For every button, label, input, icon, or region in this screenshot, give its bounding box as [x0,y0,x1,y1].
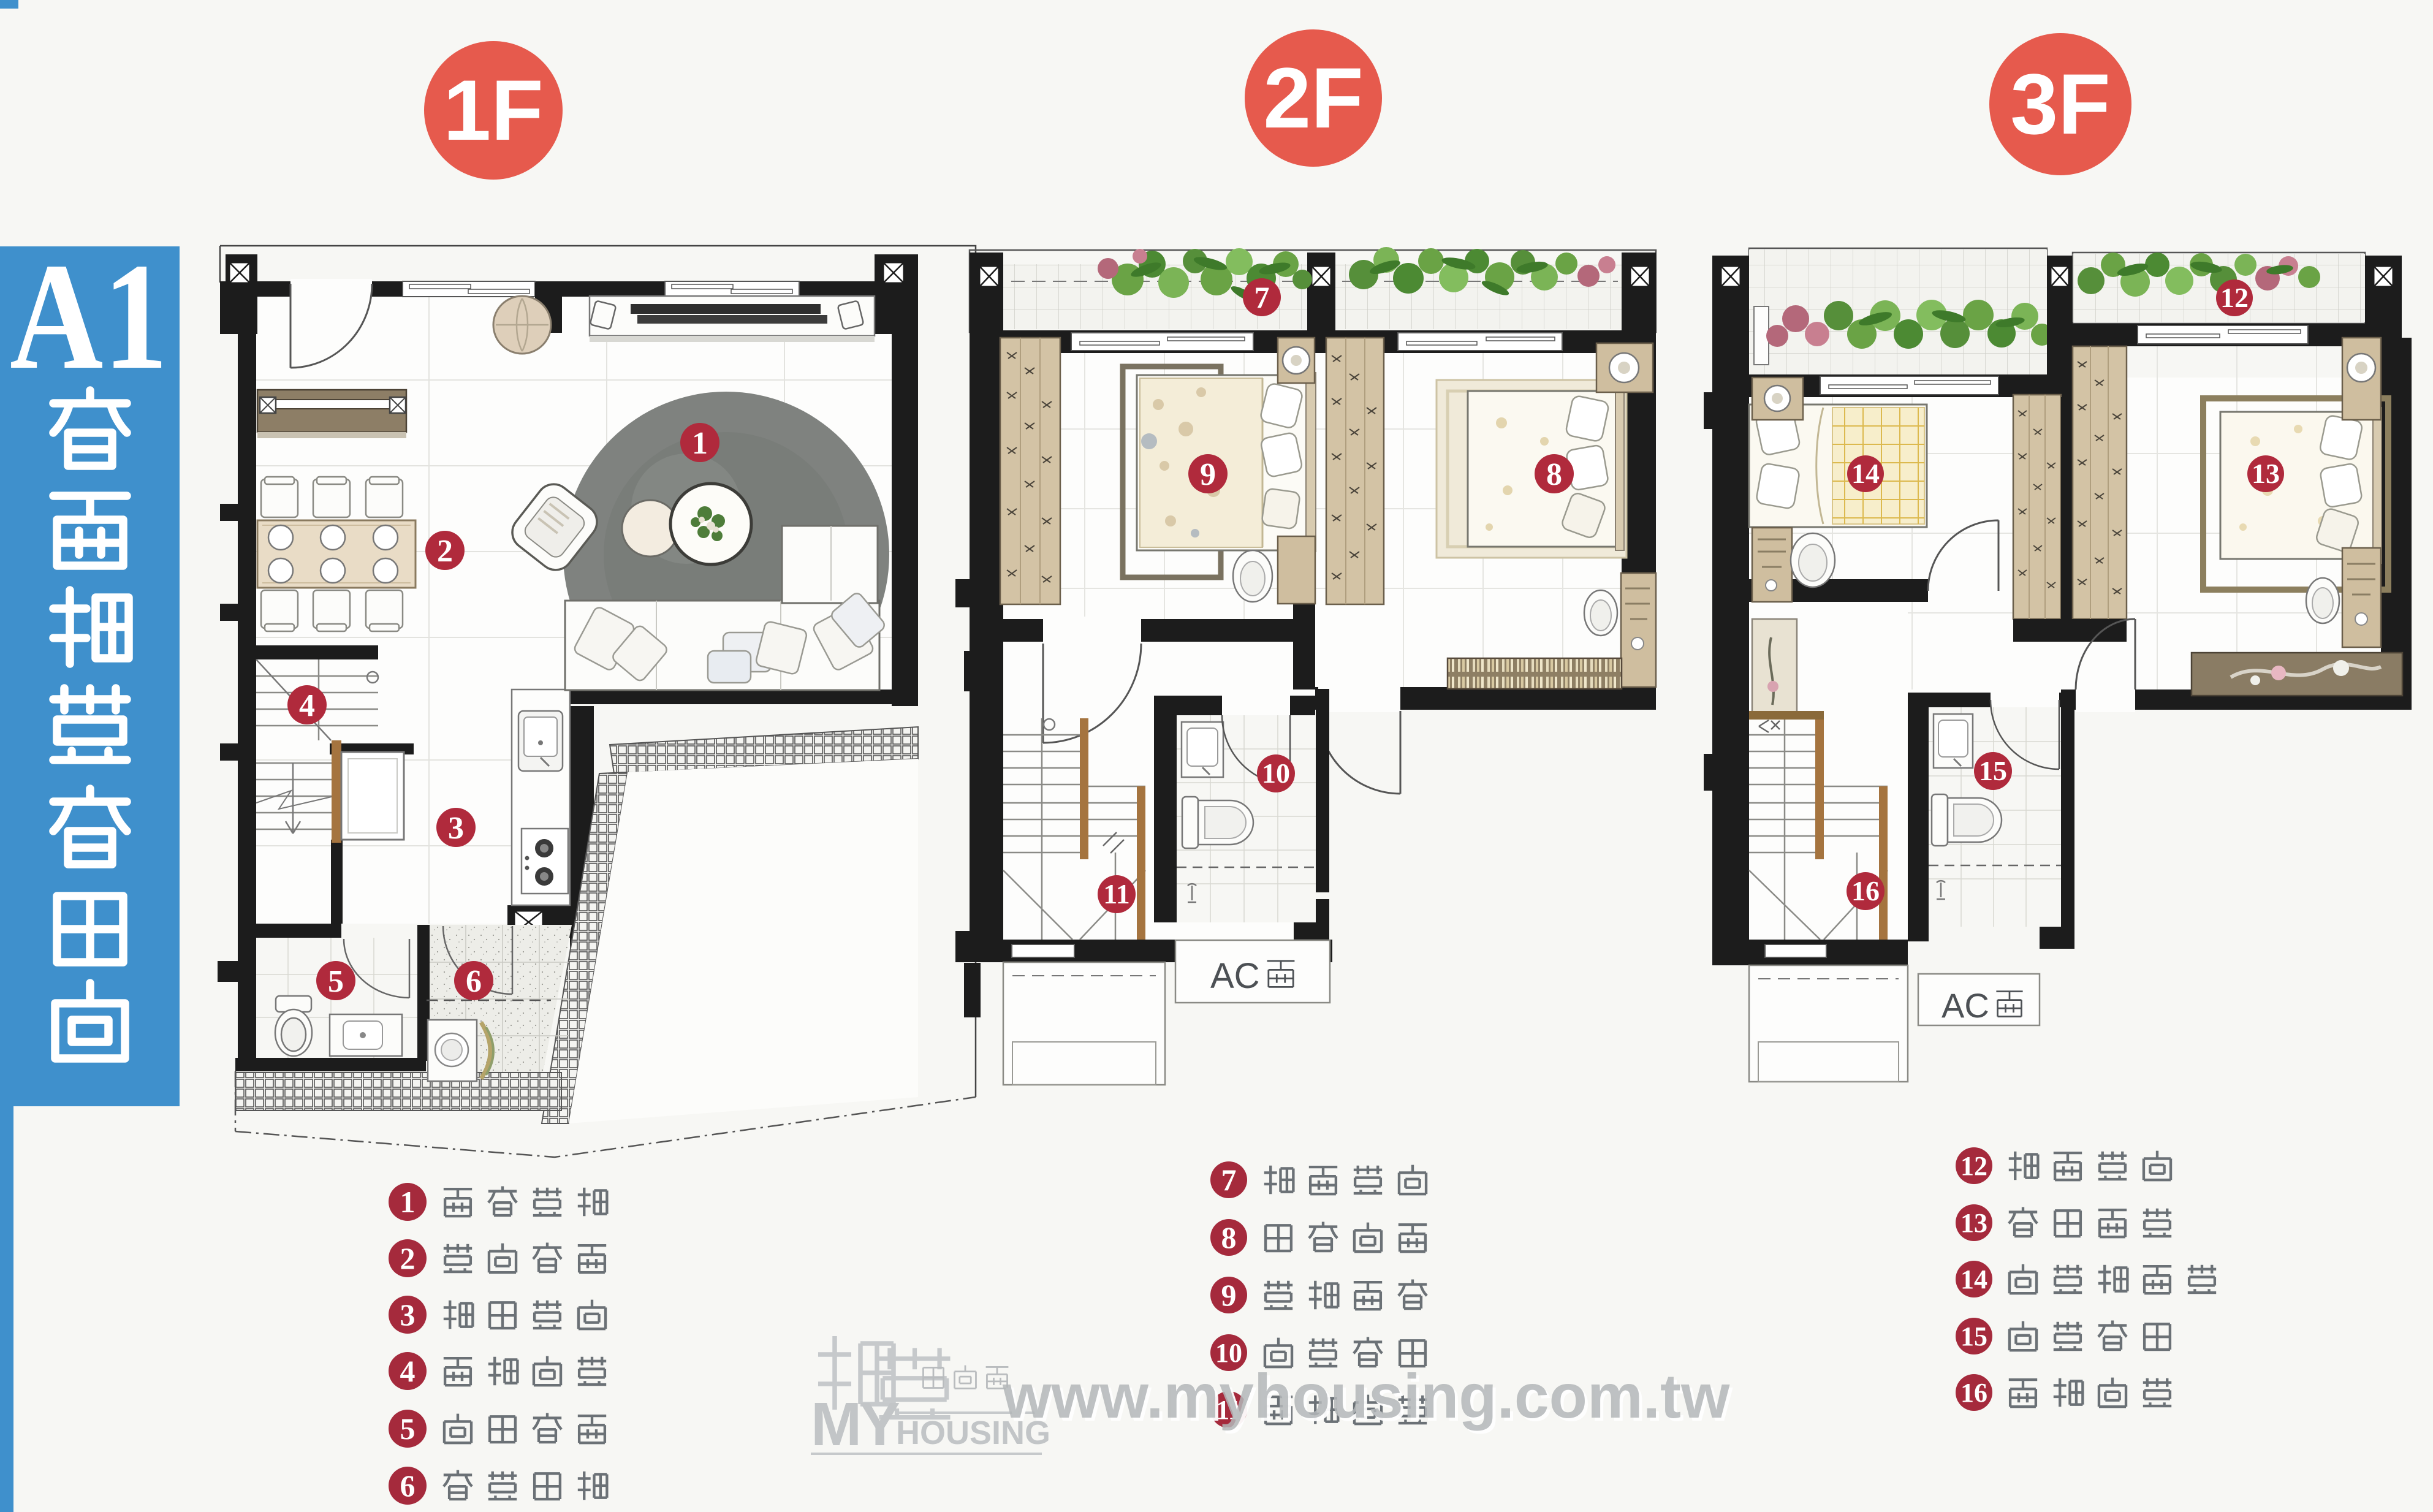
svg-text:11: 11 [1103,878,1129,910]
svg-text:AC: AC [1941,986,1989,1025]
svg-text:7: 7 [1221,1163,1237,1197]
svg-text:10: 10 [1262,758,1290,789]
svg-text:1F: 1F [443,62,543,158]
svg-text:www.myhousing.com.tw: www.myhousing.com.tw [1002,1361,1730,1431]
svg-text:1: 1 [692,426,708,461]
svg-text:13: 13 [1960,1208,1987,1238]
svg-text:16: 16 [1851,875,1880,906]
svg-text:A1: A1 [10,232,168,401]
svg-text:9: 9 [1221,1278,1237,1312]
svg-text:4: 4 [299,688,315,723]
svg-text:AC: AC [1210,956,1260,996]
svg-text:4: 4 [400,1354,416,1388]
svg-text:5: 5 [400,1411,416,1446]
svg-text:1: 1 [400,1185,416,1219]
svg-text:8: 8 [1546,457,1562,492]
svg-text:2: 2 [400,1241,416,1275]
svg-text:9: 9 [1200,457,1216,492]
svg-text:14: 14 [1851,458,1880,489]
svg-text:12: 12 [2220,282,2249,313]
svg-text:2: 2 [437,534,453,569]
svg-text:13: 13 [2252,458,2280,489]
svg-text:8: 8 [1221,1220,1237,1255]
svg-text:12: 12 [1960,1151,1987,1181]
svg-text:15: 15 [1979,755,2007,786]
svg-text:3: 3 [448,811,464,846]
svg-text:MY: MY [811,1390,900,1459]
svg-text:3: 3 [400,1297,416,1332]
svg-text:6: 6 [400,1468,416,1503]
svg-text:3F: 3F [2010,56,2110,152]
svg-text:15: 15 [1960,1321,1987,1351]
svg-text:7: 7 [1254,280,1270,314]
svg-text:16: 16 [1960,1378,1987,1408]
svg-text:14: 14 [1960,1264,1987,1294]
svg-text:6: 6 [466,964,482,999]
svg-text:5: 5 [328,964,344,999]
svg-text:2F: 2F [1263,50,1363,146]
